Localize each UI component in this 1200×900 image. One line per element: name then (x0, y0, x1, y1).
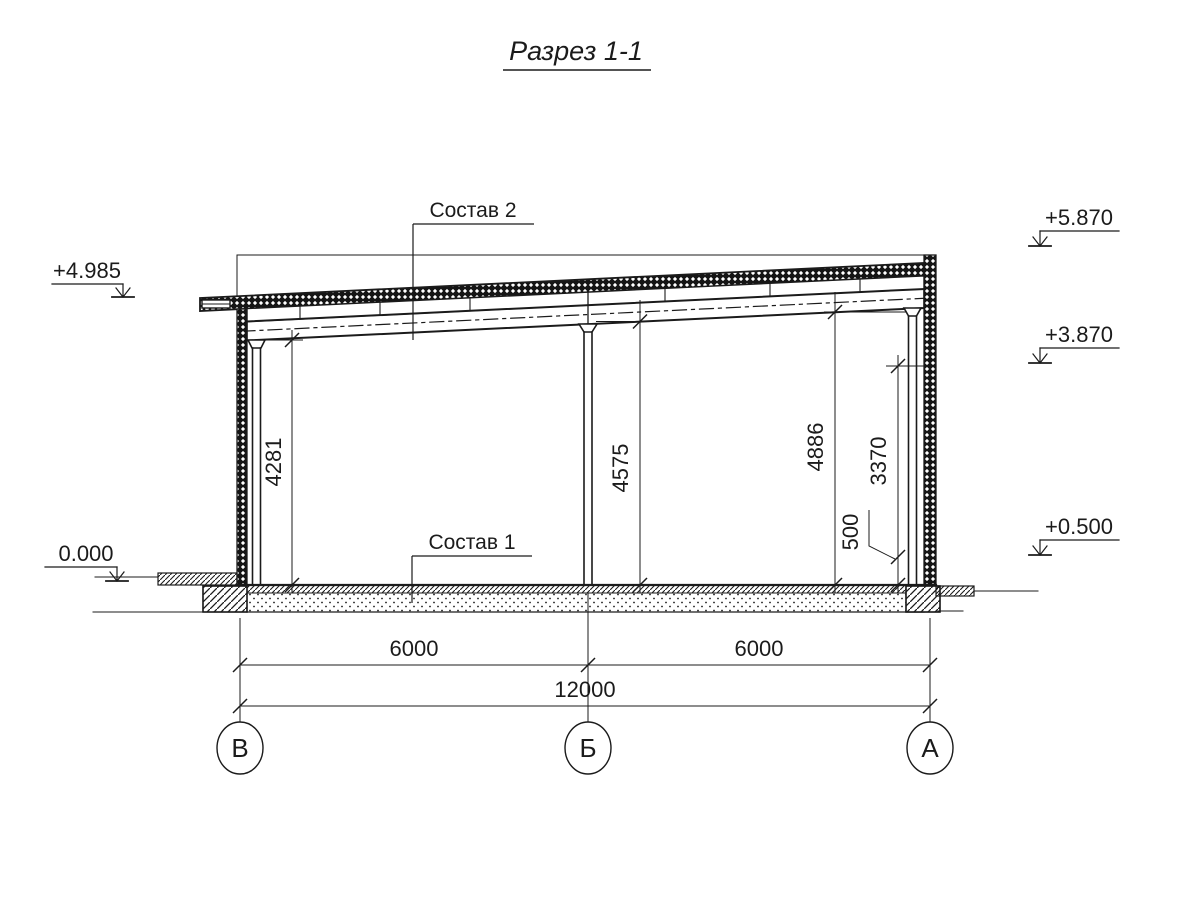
callout-roof-composition: Состав 2 (413, 199, 534, 340)
dim-wall-panel: 3370 (866, 355, 924, 593)
elevation-value: +3.870 (1045, 322, 1113, 347)
elevation-right-top: +5.870 (1029, 205, 1119, 246)
elevation-value: +0.500 (1045, 514, 1113, 539)
elevation-right-mid: +3.870 (1029, 322, 1119, 363)
dim-total: 12000 (554, 677, 615, 702)
elevation-marks: +4.985 0.000 +5.870 +3.870 (45, 205, 1119, 581)
elevation-value: +4.985 (53, 258, 121, 283)
right-foundation (906, 586, 940, 612)
callout-label: Состав 1 (428, 531, 515, 554)
elevation-left-zero: 0.000 (45, 541, 128, 581)
axis-label-b: Б (579, 733, 596, 763)
dim-value-3370: 3370 (866, 437, 891, 486)
blueprint-page: Разрез 1-1 (0, 0, 1200, 900)
dim-plinth: 500 (838, 510, 895, 559)
horizontal-dimensions: 6000 6000 12000 В Б А (217, 593, 953, 774)
section-drawing-canvas: Разрез 1-1 (0, 0, 1200, 900)
dim-value-4281: 4281 (261, 438, 286, 487)
right-apron (936, 586, 1038, 611)
elevation-value: +5.870 (1045, 205, 1113, 230)
callouts: Состав 2 Состав 1 (412, 199, 534, 603)
dim-span-right: 6000 (735, 636, 784, 661)
dim-floor-to-beam-left: 4281 (261, 330, 303, 593)
drawing-title: Разрез 1-1 (509, 36, 643, 66)
drawing-title-block: Разрез 1-1 (503, 36, 651, 70)
elevation-right-low: +0.500 (1029, 514, 1119, 555)
dim-value-4575: 4575 (608, 444, 633, 493)
dim-value-500: 500 (838, 514, 863, 551)
left-wall-panel (237, 309, 247, 585)
axis-bubbles: В Б А (217, 722, 953, 774)
dim-500-leader (869, 510, 895, 559)
floor-concrete-layer (247, 593, 924, 612)
floor-screed-layer (247, 585, 924, 593)
column-axis-b (579, 324, 597, 585)
callout-label: Состав 2 (429, 199, 516, 222)
dim-value-4886: 4886 (803, 423, 828, 472)
dim-line-total: 12000 (233, 677, 937, 713)
elevation-value: 0.000 (58, 541, 113, 566)
axis-label-a: А (921, 733, 939, 763)
right-wall-panel (924, 255, 936, 585)
column-axis-a (904, 308, 921, 585)
elevation-left-top: +4.985 (52, 258, 134, 297)
dim-line-spans: 6000 6000 (233, 636, 937, 672)
axis-label-v: В (231, 733, 248, 763)
left-foundation (203, 586, 247, 612)
dim-span-left: 6000 (390, 636, 439, 661)
dim-floor-to-beam-middle: 4575 (596, 300, 652, 593)
